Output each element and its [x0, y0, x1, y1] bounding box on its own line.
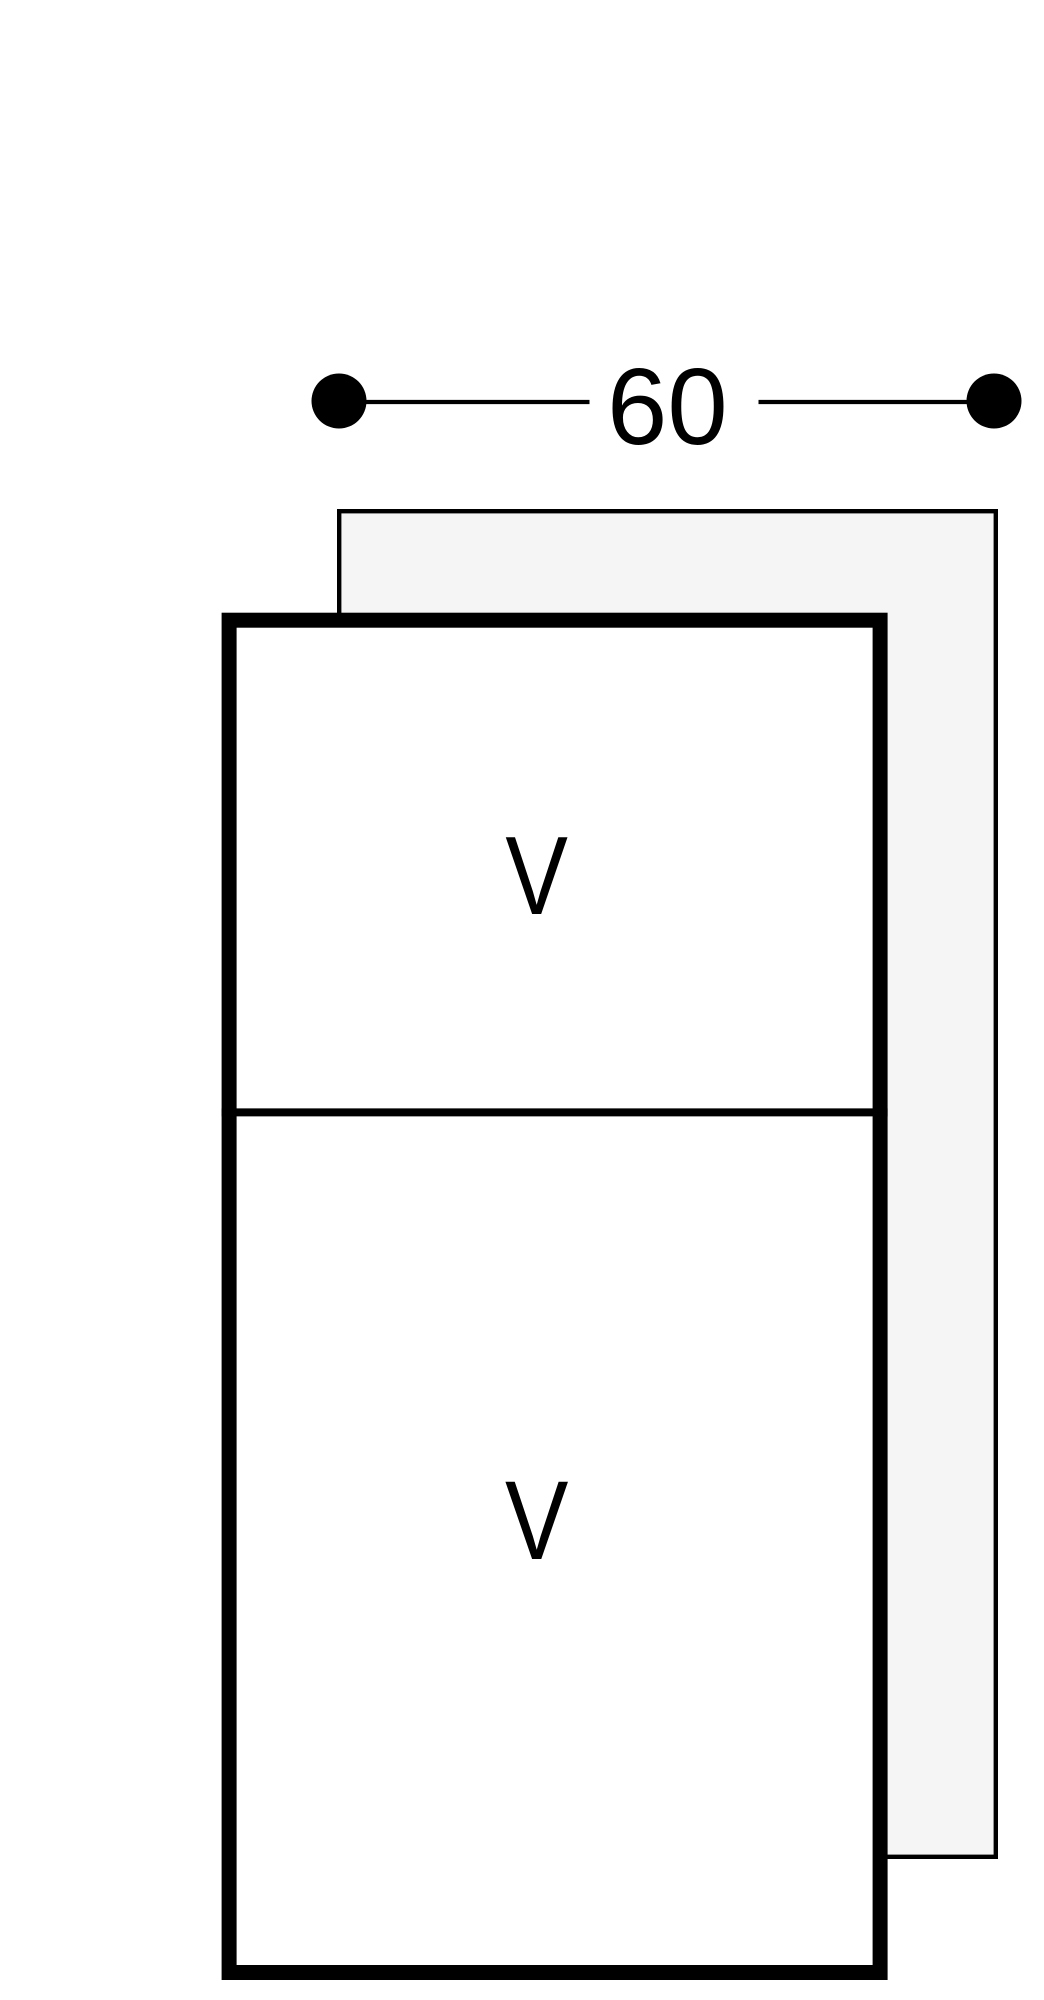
svg-text:60: 60	[607, 346, 728, 467]
svg-text:V: V	[505, 814, 568, 938]
svg-text:V: V	[505, 1459, 568, 1584]
